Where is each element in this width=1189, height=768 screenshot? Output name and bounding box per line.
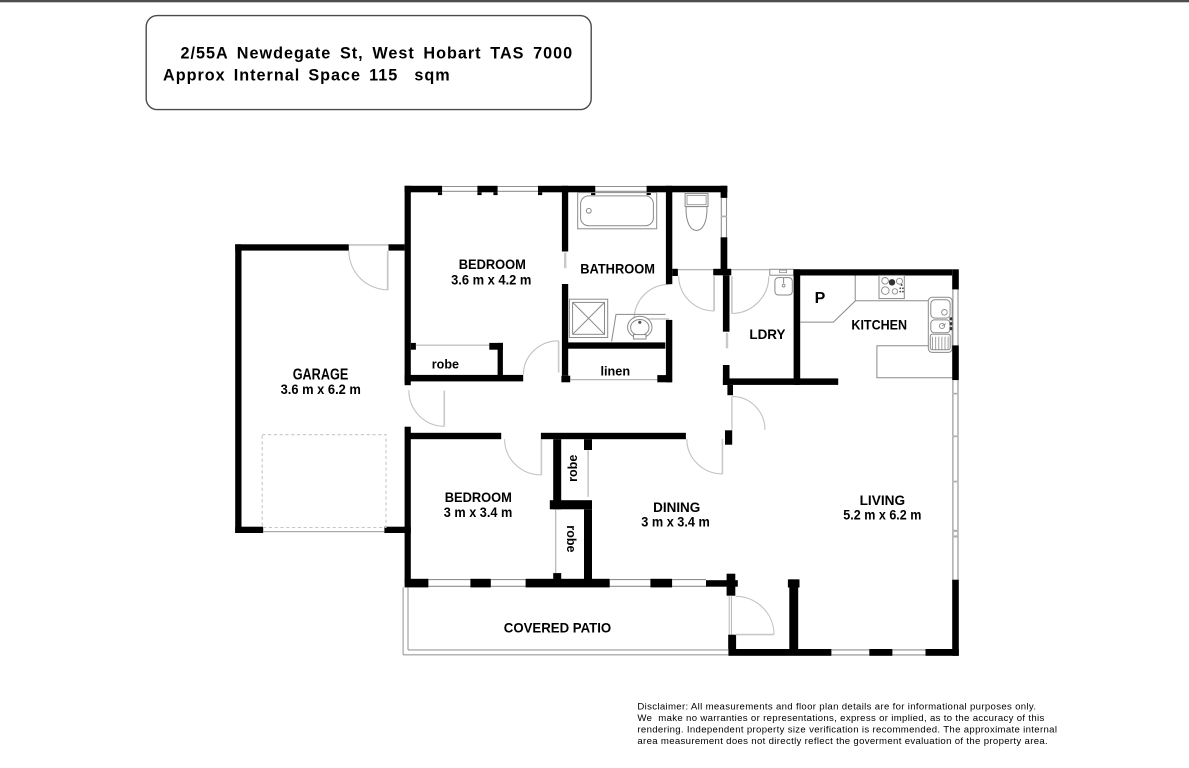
- svg-text:DINING: DINING: [653, 499, 700, 515]
- svg-text:P: P: [815, 290, 826, 307]
- svg-text:BATHROOM: BATHROOM: [580, 260, 655, 276]
- svg-text:Disclaimer: All measurements a: Disclaimer: All measurements and floor p…: [637, 702, 1036, 713]
- svg-text:LDRY: LDRY: [749, 326, 786, 342]
- svg-text:robe: robe: [565, 455, 580, 482]
- svg-text:3 m x 3.4 m: 3 m x 3.4 m: [444, 504, 513, 520]
- svg-text:LIVING: LIVING: [860, 492, 906, 508]
- svg-text:COVERED PATIO: COVERED PATIO: [504, 619, 612, 635]
- svg-text:Approx Internal Space 115 sqm: Approx Internal Space 115 sqm: [163, 67, 451, 85]
- svg-text:3 m x 3.4 m: 3 m x 3.4 m: [641, 514, 710, 530]
- svg-text:robe: robe: [432, 356, 459, 371]
- svg-text:linen: linen: [601, 363, 631, 378]
- svg-text:We make no warranties or repr: We make no warranties or representations…: [637, 713, 1044, 724]
- svg-text:KITCHEN: KITCHEN: [851, 317, 907, 333]
- svg-text:area measurement does not dire: area measurement does not directly refle…: [637, 736, 1048, 747]
- svg-text:5.2 m x 6.2 m: 5.2 m x 6.2 m: [843, 507, 921, 523]
- svg-text:3.6 m x 4.2 m: 3.6 m x 4.2 m: [451, 271, 531, 287]
- svg-text:BEDROOM: BEDROOM: [445, 489, 512, 505]
- svg-text:BEDROOM: BEDROOM: [459, 256, 526, 272]
- svg-text:3.6 m x 6.2 m: 3.6 m x 6.2 m: [281, 381, 361, 397]
- svg-text:2/55A Newdegate St, West Hobar: 2/55A Newdegate St, West Hobart TAS 7000: [181, 45, 574, 63]
- svg-text:robe: robe: [564, 525, 579, 552]
- svg-text:rendering. Independent propert: rendering. Independent property size ver…: [637, 725, 1057, 736]
